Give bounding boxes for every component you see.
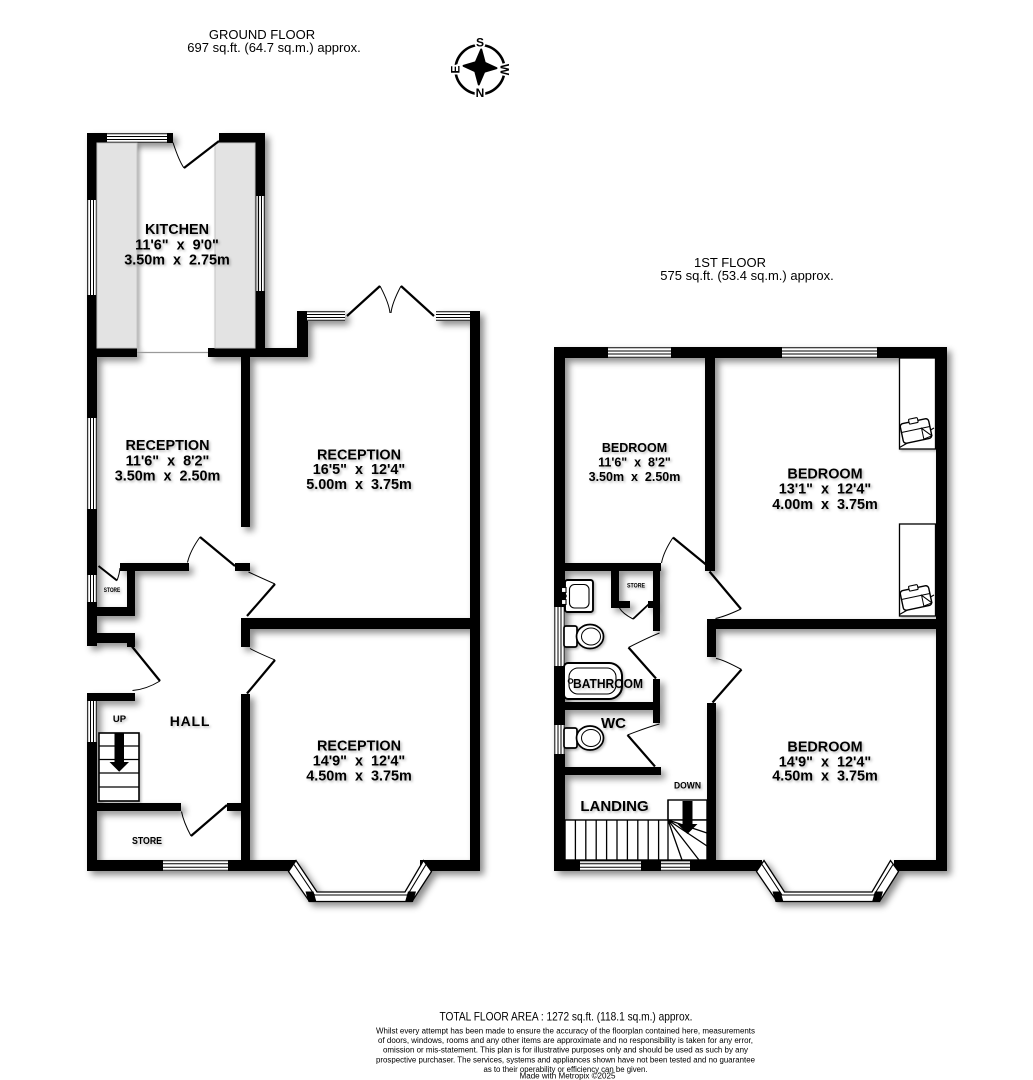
svg-text:BEDROOM: BEDROOM — [787, 467, 862, 483]
svg-text:prospective purchaser. The ser: prospective purchaser. The services, sys… — [376, 1055, 756, 1064]
svg-text:BEDROOM: BEDROOM — [602, 441, 667, 455]
svg-text:E: E — [449, 65, 463, 73]
svg-text:LANDING: LANDING — [580, 798, 648, 815]
svg-text:4.50m x 3.75m: 4.50m x 3.75m — [772, 769, 878, 785]
svg-text:Whilst every attempt has been: Whilst every attempt has been made to en… — [376, 1026, 755, 1035]
svg-text:4.00m x 3.75m: 4.00m x 3.75m — [772, 497, 878, 513]
svg-text:HALL: HALL — [170, 713, 211, 729]
svg-text:14'9" x 12'4": 14'9" x 12'4" — [313, 754, 406, 770]
svg-text:Made with Metropix ©2025: Made with Metropix ©2025 — [520, 1072, 617, 1080]
svg-text:RECEPTION: RECEPTION — [317, 448, 401, 464]
svg-text:omission or mis-statement. Thi: omission or mis-statement. This plan is … — [383, 1046, 748, 1055]
svg-text:S: S — [476, 36, 484, 50]
svg-text:16'5" x 12'4": 16'5" x 12'4" — [313, 462, 406, 478]
svg-text:3.50m x 2.50m: 3.50m x 2.50m — [115, 469, 221, 485]
svg-text:STORE: STORE — [104, 588, 121, 594]
svg-text:BEDROOM: BEDROOM — [787, 740, 862, 756]
svg-text:13'1" x 12'4": 13'1" x 12'4" — [779, 482, 872, 498]
svg-text:11'6" x 8'2": 11'6" x 8'2" — [598, 456, 671, 470]
svg-text:RECEPTION: RECEPTION — [126, 438, 210, 454]
svg-text:697 sq.ft. (64.7 sq.m.) approx: 697 sq.ft. (64.7 sq.m.) approx. — [187, 40, 360, 55]
svg-text:STORE: STORE — [627, 584, 645, 590]
svg-text:UP: UP — [113, 714, 127, 725]
svg-text:BATHROOM: BATHROOM — [573, 677, 643, 691]
svg-text:5.00m x 3.75m: 5.00m x 3.75m — [306, 477, 412, 493]
svg-text:STORE: STORE — [132, 835, 162, 847]
svg-text:3.50m x 2.50m: 3.50m x 2.50m — [589, 470, 681, 484]
svg-text:11'6" x 9'0": 11'6" x 9'0" — [135, 238, 219, 254]
svg-text:11'6" x 8'2": 11'6" x 8'2" — [126, 454, 210, 470]
svg-text:3.50m x 2.75m: 3.50m x 2.75m — [124, 253, 230, 269]
svg-text:WC: WC — [601, 715, 626, 732]
svg-text:4.50m x 3.75m: 4.50m x 3.75m — [306, 768, 412, 784]
svg-text:KITCHEN: KITCHEN — [145, 222, 209, 238]
svg-text:N: N — [476, 86, 485, 100]
svg-text:TOTAL FLOOR AREA : 1272 sq.ft.: TOTAL FLOOR AREA : 1272 sq.ft. (118.1 sq… — [440, 1010, 693, 1024]
svg-text:RECEPTION: RECEPTION — [317, 739, 401, 755]
svg-text:DOWN: DOWN — [674, 781, 701, 792]
svg-text:of doors, windows, rooms and a: of doors, windows, rooms and any other i… — [378, 1036, 753, 1045]
svg-text:W: W — [497, 64, 511, 76]
svg-text:575 sq.ft. (53.4 sq.m.) approx: 575 sq.ft. (53.4 sq.m.) approx. — [660, 268, 833, 283]
